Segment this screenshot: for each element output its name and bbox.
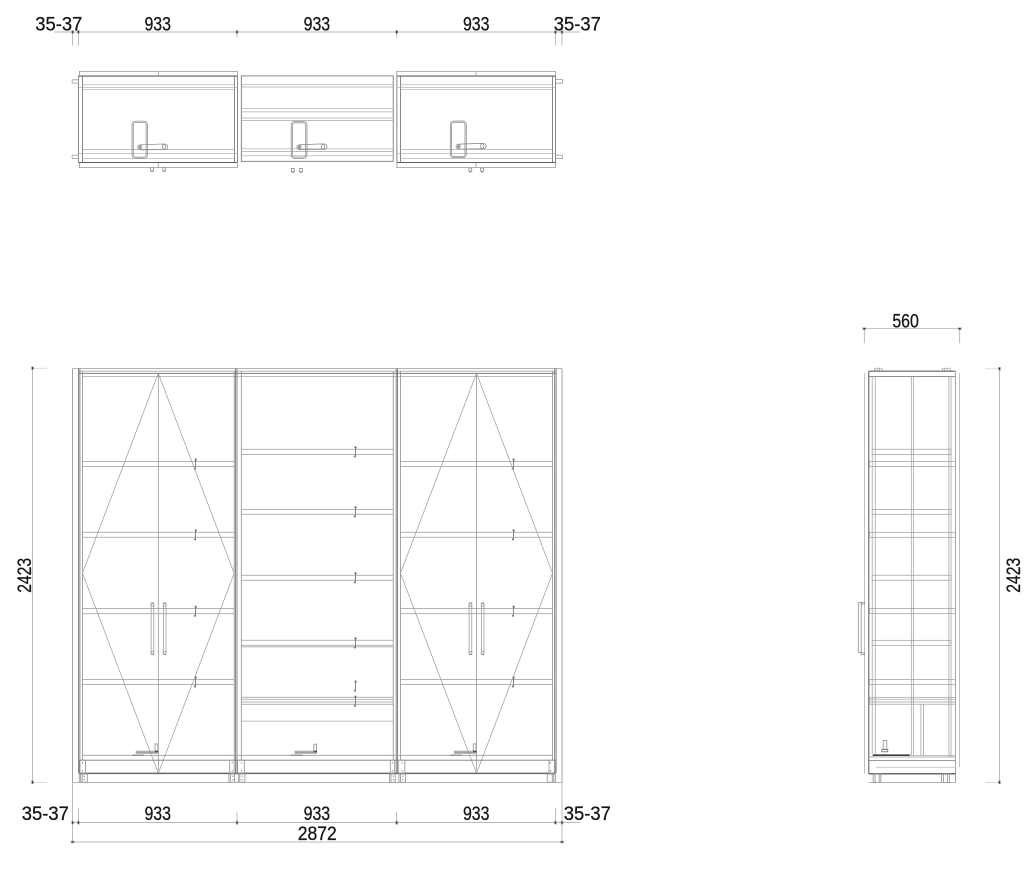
svg-text:933: 933 <box>304 14 331 35</box>
svg-text:2423: 2423 <box>1004 558 1024 593</box>
svg-text:2872: 2872 <box>298 824 337 845</box>
svg-text:560: 560 <box>892 311 919 332</box>
svg-text:933: 933 <box>463 804 490 825</box>
svg-text:35-37: 35-37 <box>564 804 611 825</box>
svg-text:933: 933 <box>144 804 171 825</box>
svg-text:933: 933 <box>144 14 171 35</box>
svg-text:933: 933 <box>304 804 331 825</box>
svg-text:35-37: 35-37 <box>35 14 82 35</box>
svg-text:35-37: 35-37 <box>22 804 69 825</box>
svg-text:35-37: 35-37 <box>554 14 601 35</box>
svg-text:2423: 2423 <box>15 558 36 593</box>
svg-text:933: 933 <box>463 14 490 35</box>
